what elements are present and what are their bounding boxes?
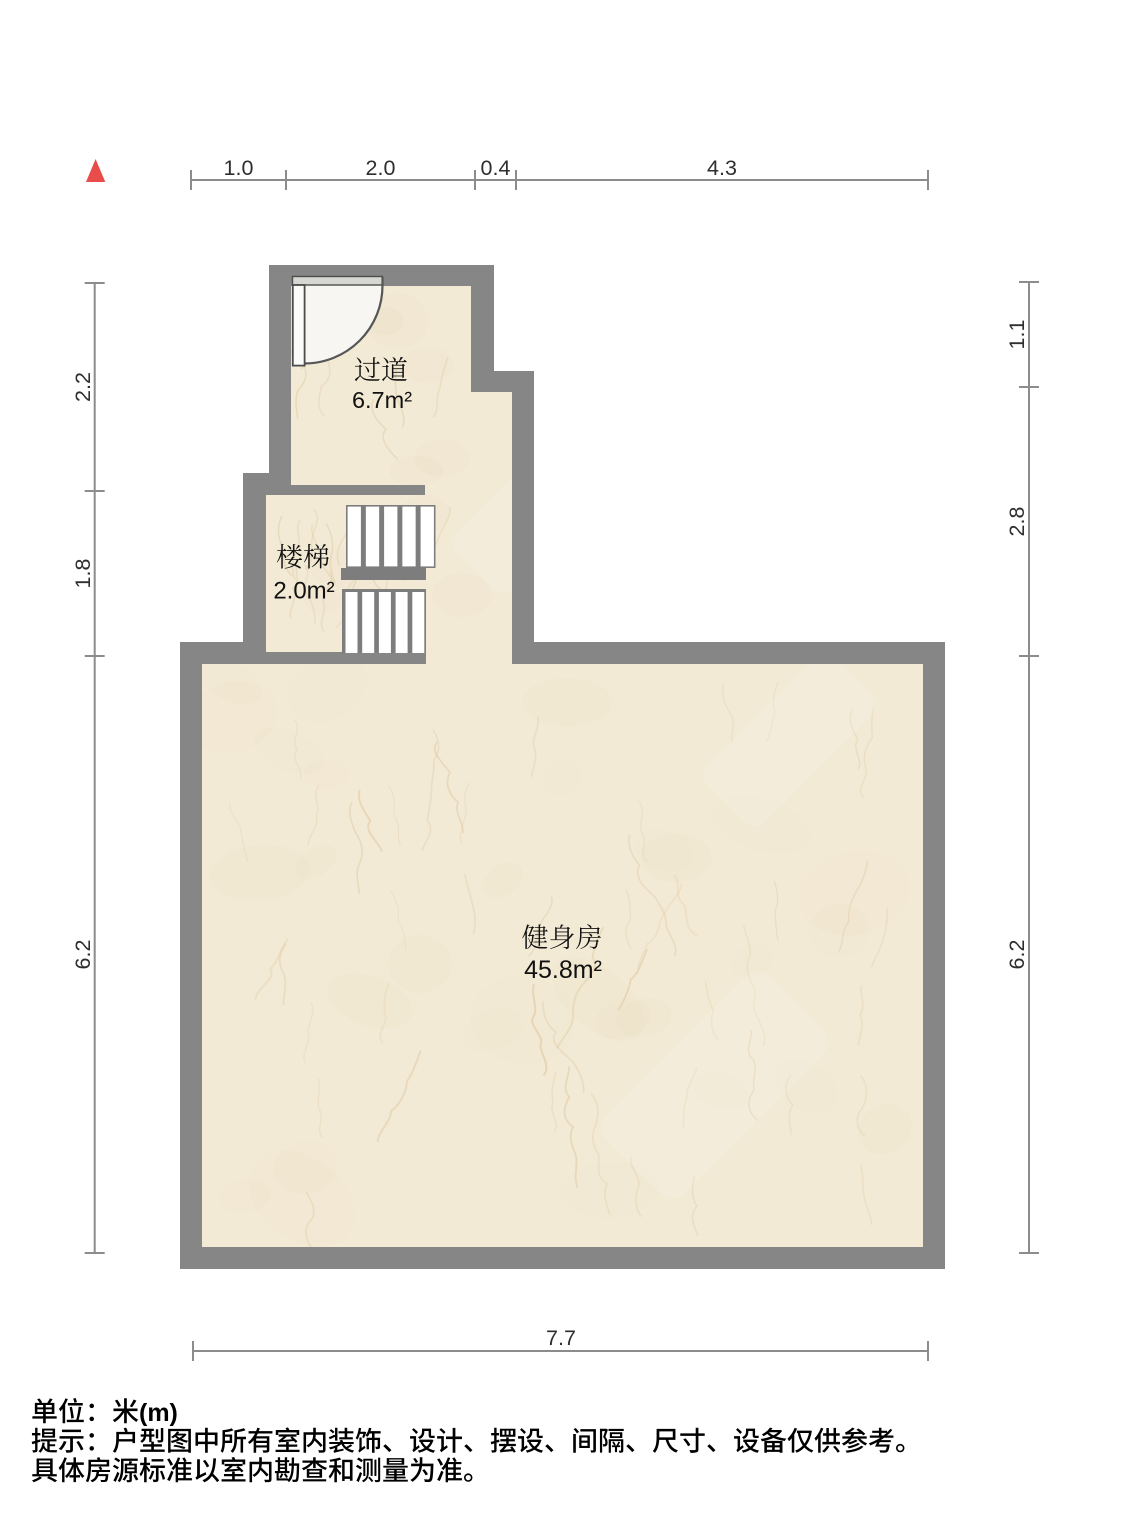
svg-text:6.2: 6.2: [71, 940, 95, 970]
svg-text:2.2: 2.2: [71, 372, 95, 402]
svg-text:1.0: 1.0: [224, 156, 254, 180]
svg-text:4.3: 4.3: [707, 156, 737, 180]
svg-text:2.0m²: 2.0m²: [273, 578, 334, 605]
svg-text:0.4: 0.4: [481, 156, 511, 180]
svg-text:6.7m²: 6.7m²: [352, 387, 412, 413]
svg-text:45.8m²: 45.8m²: [524, 956, 602, 984]
svg-text:7.7: 7.7: [546, 1326, 576, 1350]
svg-text:1.8: 1.8: [71, 559, 95, 589]
svg-text:6.2: 6.2: [1005, 940, 1029, 970]
svg-text:2.8: 2.8: [1005, 507, 1029, 537]
svg-text:2.0: 2.0: [366, 156, 396, 180]
svg-text:1.1: 1.1: [1005, 320, 1029, 350]
svg-text:(m): (m): [139, 1399, 178, 1427]
